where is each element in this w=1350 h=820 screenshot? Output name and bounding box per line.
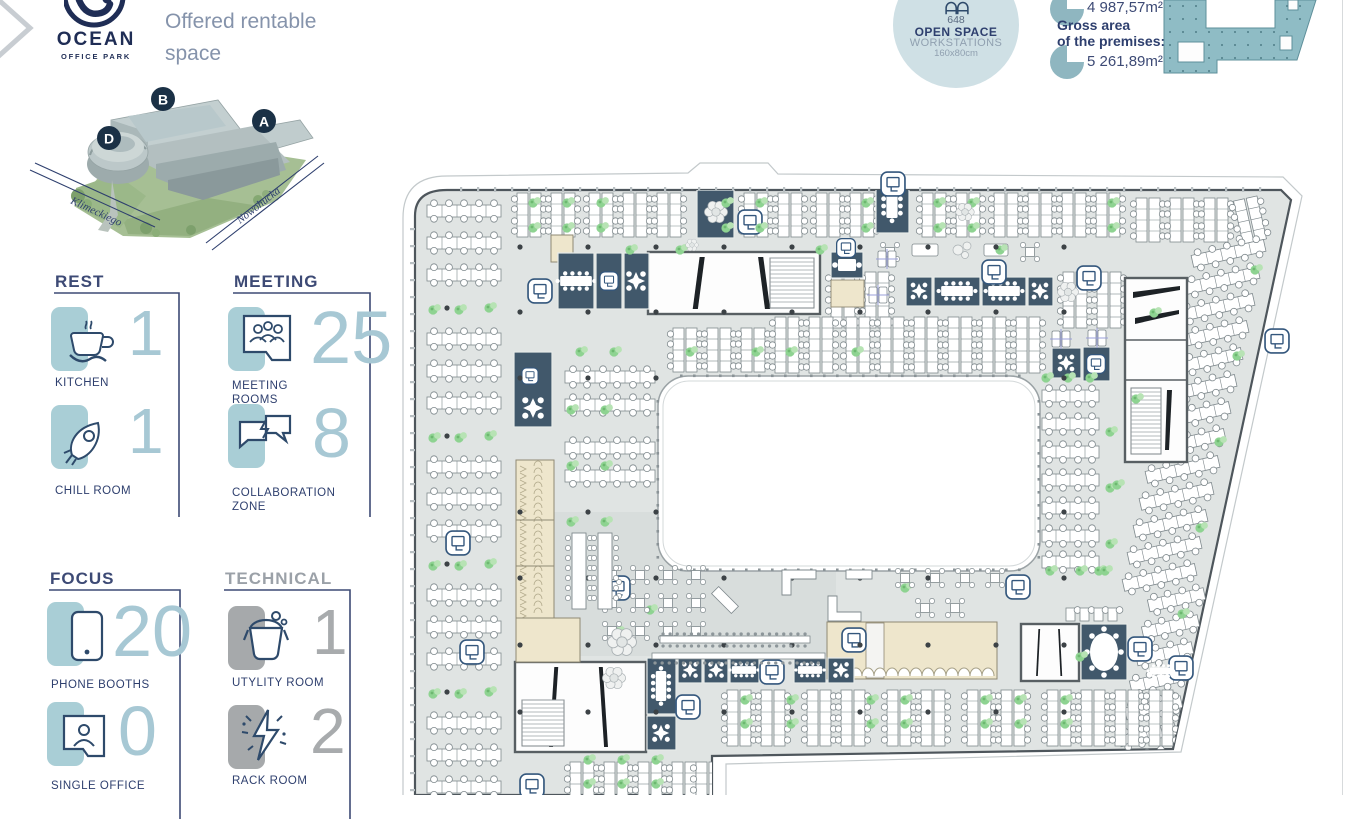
svg-text:B: B [158, 92, 168, 108]
svg-text:D: D [104, 131, 114, 147]
svg-text:A: A [259, 114, 269, 130]
